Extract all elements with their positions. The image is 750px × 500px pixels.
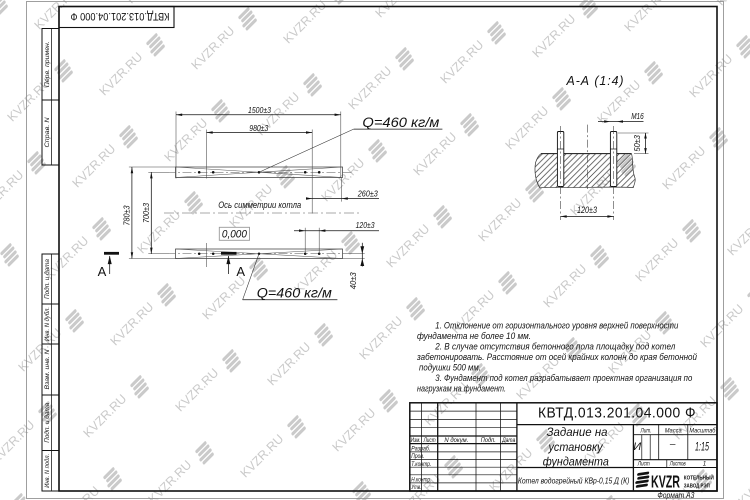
svg-text:Разраб.: Разраб. bbox=[411, 444, 430, 452]
svg-text:1: 1 bbox=[703, 461, 707, 468]
svg-text:Котел водогрейный КВр-0,15 Д (: Котел водогрейный КВр-0,15 Д (К) bbox=[518, 476, 630, 485]
svg-text:700±3: 700±3 bbox=[141, 203, 151, 223]
svg-text:Формат А3: Формат А3 bbox=[657, 491, 694, 500]
svg-text:Ось симметрии котла: Ось симметрии котла bbox=[218, 200, 301, 211]
svg-text:1500±3: 1500±3 bbox=[248, 105, 271, 115]
svg-text:нагрузкам на фундамент.: нагрузкам на фундамент. bbox=[417, 384, 506, 394]
svg-text:980±3: 980±3 bbox=[249, 123, 268, 133]
svg-text:А-А (1:4): А-А (1:4) bbox=[566, 73, 625, 88]
svg-text:Подп.: Подп. bbox=[481, 436, 496, 444]
svg-text:780±3: 780±3 bbox=[122, 205, 132, 225]
svg-text:Т.контр.: Т.контр. bbox=[411, 461, 431, 468]
svg-text:Q=460 кг/м: Q=460 кг/м bbox=[257, 285, 332, 300]
svg-text:Лист: Лист bbox=[637, 461, 650, 468]
svg-text:Масштаб: Масштаб bbox=[689, 427, 715, 435]
svg-text:Задание на: Задание на bbox=[547, 427, 608, 439]
svg-text:забетонировать. Расстояние от: забетонировать. Расстояние от осей крайн… bbox=[416, 352, 697, 362]
svg-text:фундамента: фундамента bbox=[543, 456, 609, 468]
svg-text:Изм.: Изм. bbox=[411, 437, 421, 444]
svg-text:Взам. инв. N: Взам. инв. N bbox=[44, 349, 51, 389]
svg-text:КОТЕЛЬНЫЙ: КОТЕЛЬНЫЙ bbox=[684, 473, 714, 481]
svg-text:1:15: 1:15 bbox=[695, 439, 709, 453]
svg-text:Лит.: Лит. bbox=[640, 428, 652, 435]
svg-text:КВТД.013.201.04.000 Ф: КВТД.013.201.04.000 Ф bbox=[71, 10, 170, 22]
svg-text:1. Отклонение от горизонтально: 1. Отклонение от горизонтального уровня … bbox=[435, 321, 678, 331]
svg-text:50±3: 50±3 bbox=[632, 135, 642, 152]
svg-text:Листов: Листов bbox=[669, 461, 686, 468]
svg-text:Н.контр.: Н.контр. bbox=[411, 476, 431, 483]
svg-text:Дата: Дата bbox=[501, 437, 515, 444]
svg-text:подушки 500 мм.: подушки 500 мм. bbox=[419, 363, 481, 373]
svg-text:0,000: 0,000 bbox=[222, 229, 248, 241]
svg-text:Перв. примен.: Перв. примен. bbox=[44, 41, 51, 87]
svg-text:120±3: 120±3 bbox=[356, 220, 375, 230]
svg-text:M16: M16 bbox=[631, 112, 644, 121]
svg-text:фундамента не более 10 мм.: фундамента не более 10 мм. bbox=[417, 331, 531, 341]
svg-text:Q=460 кг/м: Q=460 кг/м bbox=[362, 115, 439, 130]
svg-text:КВТД.013.201.04.000 Ф: КВТД.013.201.04.000 Ф bbox=[538, 405, 696, 422]
svg-text:А: А bbox=[98, 264, 107, 279]
svg-text:40±3: 40±3 bbox=[348, 272, 358, 289]
svg-text:120±3: 120±3 bbox=[577, 205, 597, 215]
svg-text:Лист: Лист bbox=[423, 437, 436, 444]
svg-text:Справ. N: Справ. N bbox=[44, 117, 51, 147]
svg-text:ЗАВОД РЭП: ЗАВОД РЭП bbox=[684, 484, 710, 490]
svg-text:Подп. и дата: Подп. и дата bbox=[43, 259, 51, 299]
svg-text:Подп. и дата: Подп. и дата bbox=[43, 403, 51, 443]
svg-text:Инв. N дубл.: Инв. N дубл. bbox=[43, 307, 51, 341]
svg-text:KVZR: KVZR bbox=[651, 471, 680, 491]
svg-text:Масса: Масса bbox=[665, 428, 682, 435]
svg-text:N докум.: N докум. bbox=[444, 436, 468, 444]
svg-text:И: И bbox=[633, 441, 641, 453]
svg-text:–: – bbox=[669, 439, 676, 450]
svg-text:260±3: 260±3 bbox=[357, 188, 378, 198]
svg-text:2. В случае отсутствия бетонно: 2. В случае отсутствия бетонного пола пл… bbox=[434, 342, 676, 352]
svg-text:Утв.: Утв. bbox=[411, 484, 422, 491]
svg-text:3. Фундамент под котел разраба: 3. Фундамент под котел разрабатывает про… bbox=[435, 373, 692, 383]
svg-text:А: А bbox=[236, 264, 245, 279]
svg-text:Инв. N подл.: Инв. N подл. bbox=[43, 454, 51, 488]
svg-text:Пров.: Пров. bbox=[411, 453, 424, 460]
svg-text:установку: установку bbox=[548, 442, 604, 454]
